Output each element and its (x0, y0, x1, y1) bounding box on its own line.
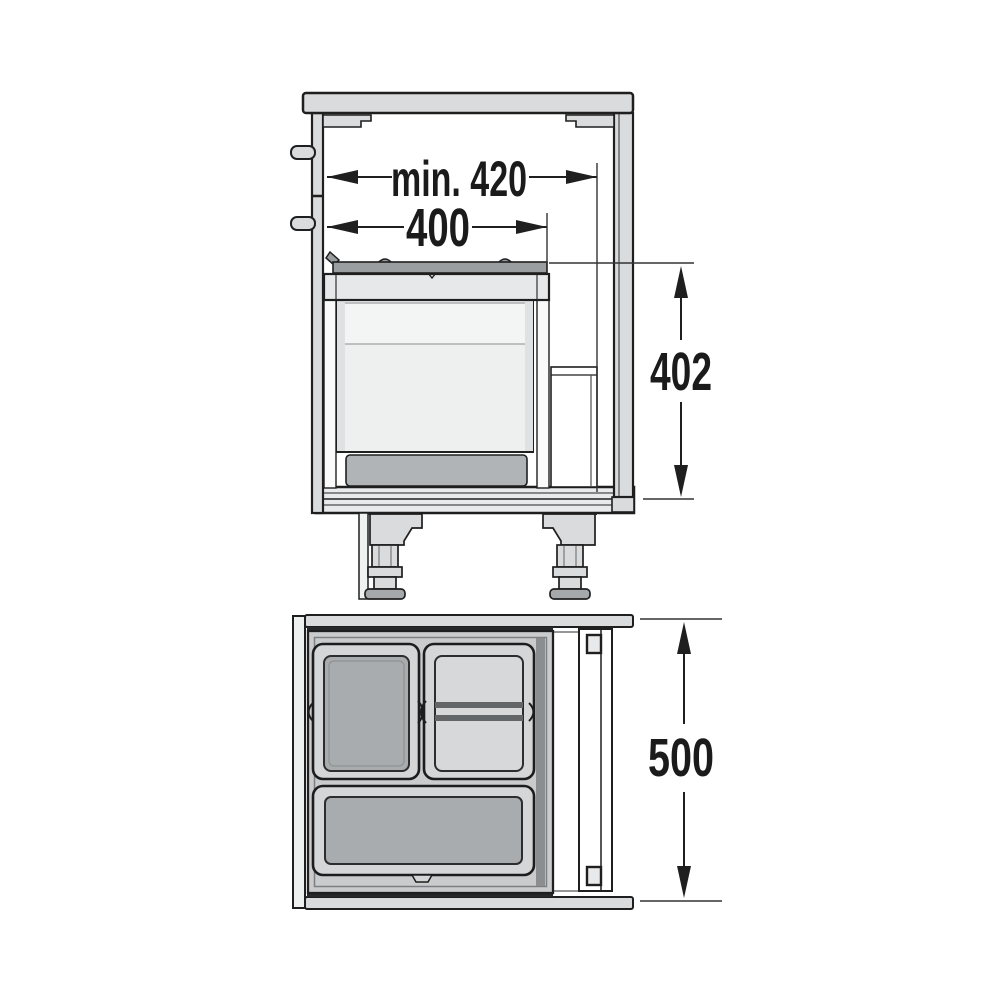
bin-base (346, 455, 527, 486)
technical-drawing-canvas: min. 420 400 402 (0, 0, 1000, 1000)
arrowhead-up (674, 266, 688, 298)
rear-support-box (551, 367, 597, 487)
arrowhead-down (674, 465, 688, 497)
leg-left (359, 513, 422, 599)
worktop (303, 93, 633, 113)
dim-label-500: 500 (648, 728, 714, 788)
cabinet-waste-bin-drawing: min. 420 400 402 (0, 0, 1000, 1000)
dim-label-402: 402 (650, 342, 712, 402)
platform-end-block (612, 497, 634, 512)
plan-front-panel (305, 615, 633, 627)
plan-back-panel (305, 897, 633, 909)
dim-label-400: 400 (406, 198, 470, 258)
corner-bracket-left (323, 115, 371, 127)
side-view: min. 420 400 402 (291, 93, 712, 599)
frame-rail-right (537, 286, 549, 488)
plan-right-door (579, 629, 612, 891)
arrowhead-up (677, 622, 691, 654)
leg-right-bracket (543, 514, 597, 545)
front-door-panel (291, 113, 323, 513)
frame-rail-left (324, 286, 336, 488)
bin-handle-notch-bottom (412, 875, 432, 882)
frame-right-shadow (536, 638, 545, 886)
corner-bracket-right (566, 115, 614, 127)
dimension-400: 400 (327, 198, 547, 263)
hinge-peg-top (291, 146, 315, 159)
leg-right (543, 514, 597, 599)
door-clip-top (587, 635, 601, 653)
plan-left-wall (293, 616, 305, 908)
bin-top-band (340, 303, 530, 344)
bin-rim (324, 274, 549, 300)
door-clip-bottom (587, 867, 601, 885)
pull-out-frame (308, 631, 553, 893)
dimension-500: 500 (640, 619, 722, 901)
arrowhead-down (677, 866, 691, 898)
plan-view: 500 (293, 615, 722, 909)
hinge-peg-bottom (291, 217, 315, 230)
leg-left-foot (365, 589, 405, 599)
bin-divider-line-2 (435, 715, 523, 721)
bin-divider-line-1 (435, 702, 523, 708)
arrowhead-right (516, 220, 547, 234)
leg-left-bracket (368, 514, 422, 545)
arrowhead-right (566, 170, 597, 184)
waste-bin (324, 252, 549, 486)
plan-bin-right-split (424, 644, 534, 779)
leg-left-plinth-clip (359, 513, 368, 599)
back-panel (614, 113, 633, 497)
arrowhead-left (327, 220, 358, 234)
plan-bin-wide (313, 786, 534, 882)
arrowhead-left (327, 170, 358, 184)
plan-bin-left (313, 644, 419, 779)
leg-right-foot (550, 589, 590, 599)
cabinet-bottom-platform (316, 487, 634, 513)
